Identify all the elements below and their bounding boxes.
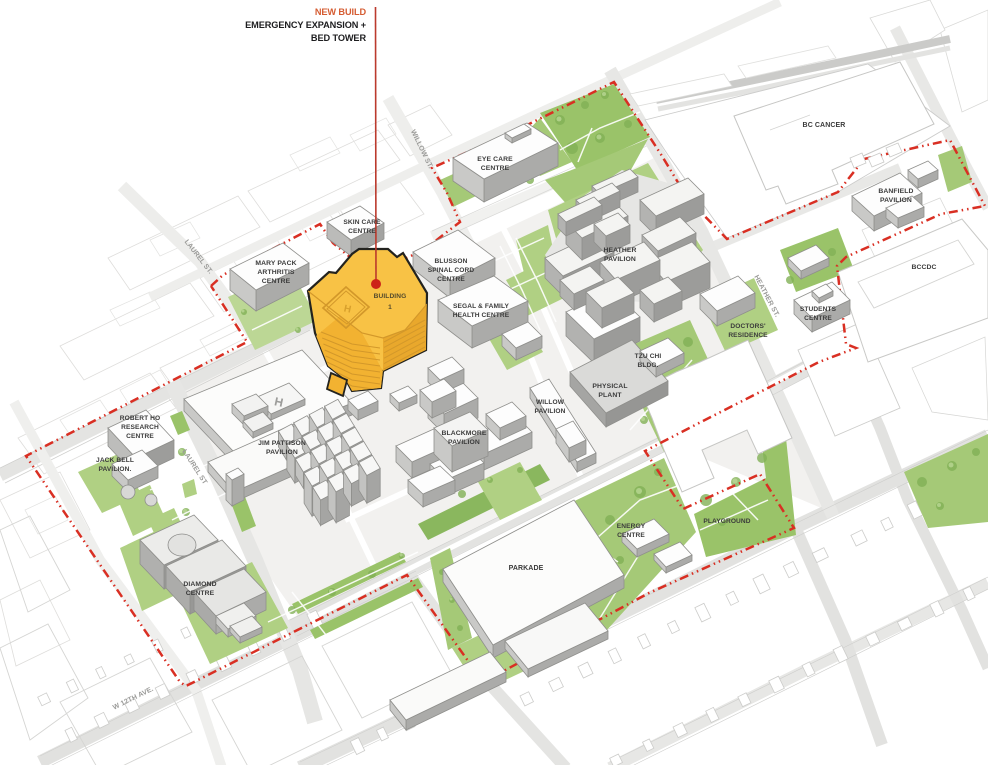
svg-text:JIM PATTISON: JIM PATTISON: [258, 440, 306, 447]
svg-text:EMERGENCY EXPANSION +: EMERGENCY EXPANSION +: [245, 20, 366, 30]
svg-text:HEALTH CENTRE: HEALTH CENTRE: [453, 312, 510, 319]
svg-text:BC CANCER: BC CANCER: [803, 122, 846, 129]
svg-text:BLUSSON: BLUSSON: [435, 258, 468, 265]
svg-text:JACK BELL: JACK BELL: [96, 457, 134, 464]
svg-text:PARKADE: PARKADE: [509, 565, 544, 572]
svg-text:1: 1: [388, 304, 392, 311]
svg-text:BLACKMORE: BLACKMORE: [441, 430, 486, 437]
svg-text:SKIN CARE: SKIN CARE: [343, 219, 381, 226]
svg-text:ENERGY: ENERGY: [617, 523, 646, 530]
svg-text:BED TOWER: BED TOWER: [311, 33, 367, 43]
svg-text:PAVILION: PAVILION: [880, 197, 912, 204]
svg-text:PAVILION: PAVILION: [604, 256, 636, 263]
svg-text:CENTRE: CENTRE: [262, 278, 291, 285]
svg-text:CENTRE: CENTRE: [186, 590, 215, 597]
svg-text:PLAYGROUND: PLAYGROUND: [703, 518, 750, 525]
svg-text:CENTRE: CENTRE: [437, 276, 465, 283]
svg-text:PLANT: PLANT: [598, 392, 622, 399]
svg-text:PAVILION: PAVILION: [266, 449, 298, 456]
svg-text:RESEARCH: RESEARCH: [121, 424, 159, 431]
svg-text:PHYSICAL: PHYSICAL: [592, 383, 627, 390]
svg-text:DIAMOND: DIAMOND: [183, 581, 216, 588]
svg-text:BUILDING: BUILDING: [374, 293, 407, 300]
svg-text:TZU CHI: TZU CHI: [635, 353, 662, 360]
svg-text:CENTRE: CENTRE: [481, 165, 510, 172]
svg-text:SEGAL & FAMILY: SEGAL & FAMILY: [453, 303, 509, 310]
svg-text:CENTRE: CENTRE: [126, 433, 154, 440]
svg-text:BANFIELD: BANFIELD: [878, 188, 913, 195]
svg-text:ROBERT HO: ROBERT HO: [120, 415, 160, 422]
svg-text:EYE CARE: EYE CARE: [477, 156, 513, 163]
svg-text:ARTHRITIS: ARTHRITIS: [257, 269, 295, 276]
svg-text:RESIDENCE: RESIDENCE: [728, 332, 768, 339]
svg-text:HEATHER: HEATHER: [603, 247, 636, 254]
svg-text:PAVILION: PAVILION: [448, 439, 480, 446]
svg-text:BCCDC: BCCDC: [911, 264, 936, 271]
svg-text:PAVILION.: PAVILION.: [99, 466, 132, 473]
svg-text:DOCTORS': DOCTORS': [730, 323, 766, 330]
svg-text:STUDENTS: STUDENTS: [800, 306, 837, 313]
svg-text:CENTRE: CENTRE: [617, 532, 645, 539]
svg-text:WILLOW: WILLOW: [536, 399, 565, 406]
svg-text:NEW BUILD: NEW BUILD: [315, 7, 367, 17]
svg-text:MARY PACK: MARY PACK: [255, 260, 296, 267]
svg-text:BLDG.: BLDG.: [637, 362, 658, 369]
svg-text:PAVILION: PAVILION: [535, 408, 566, 415]
svg-text:CENTRE: CENTRE: [804, 315, 832, 322]
svg-text:CENTRE: CENTRE: [348, 228, 376, 235]
svg-text:SPINAL CORD: SPINAL CORD: [428, 267, 475, 274]
